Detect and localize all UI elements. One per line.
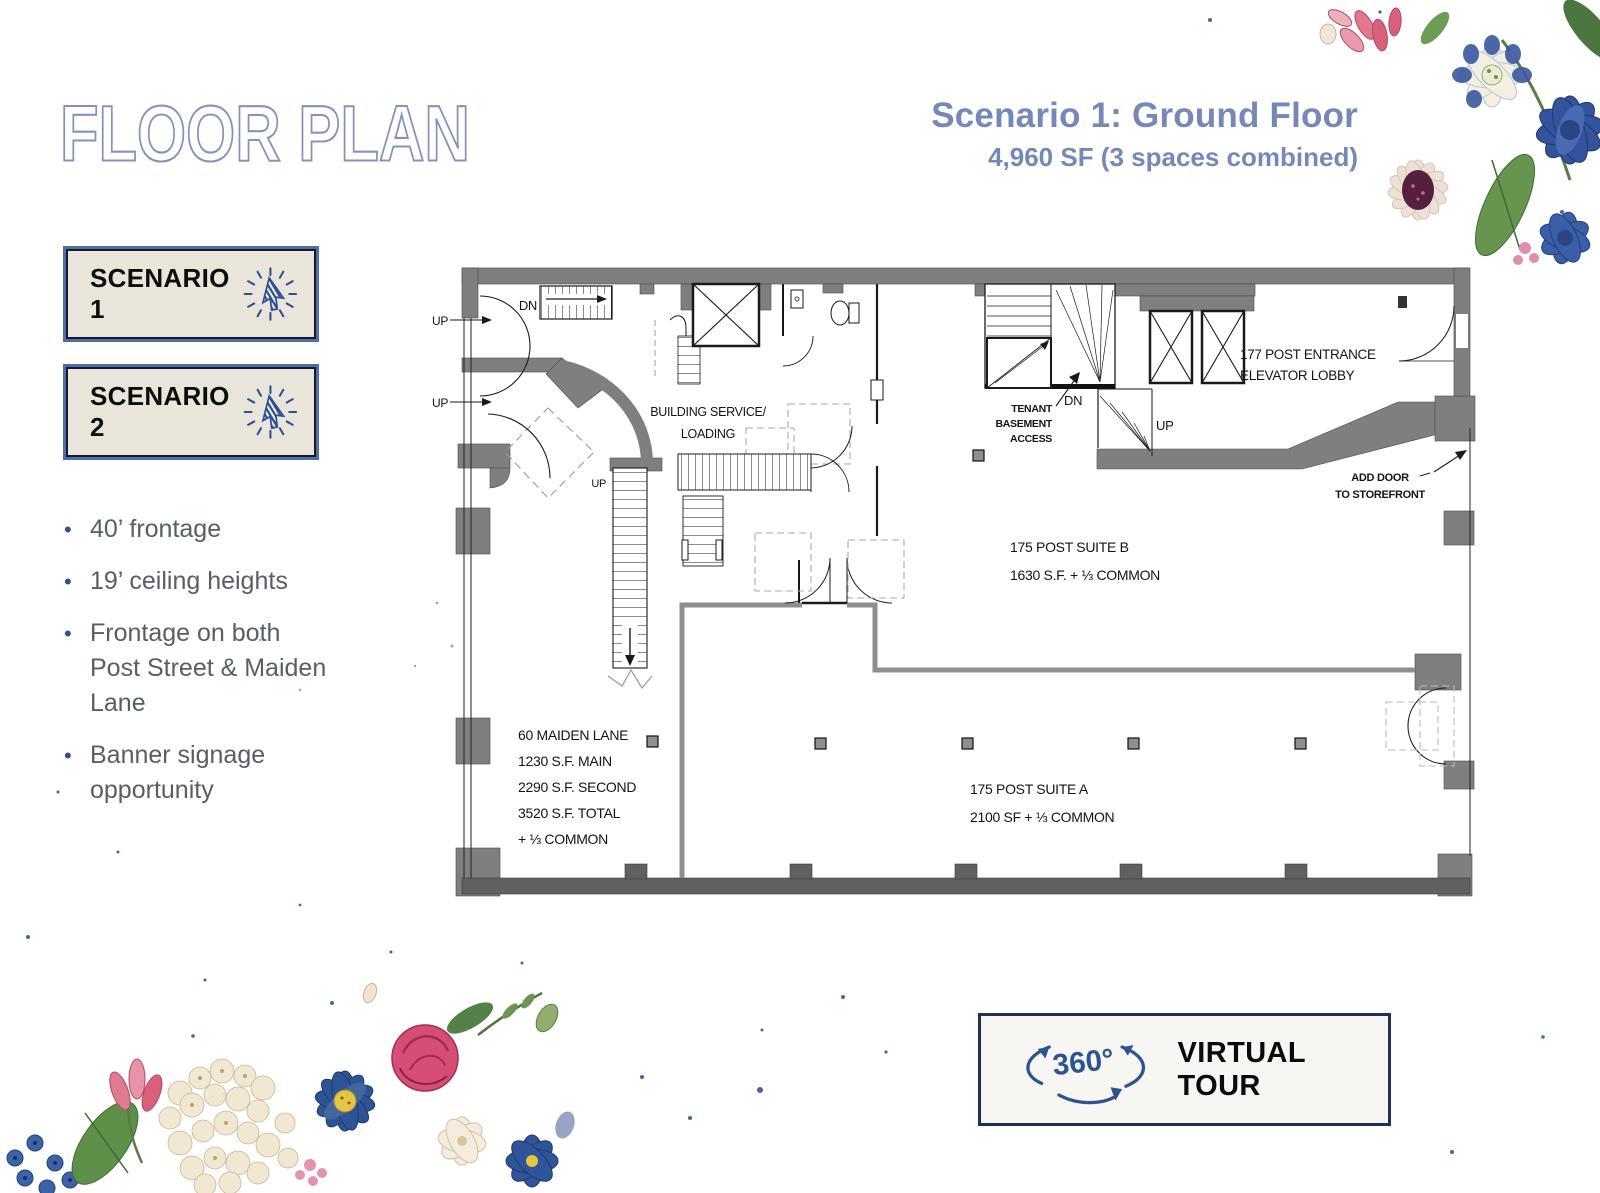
suite-b-label: 175 POST SUITE B: [1010, 539, 1129, 555]
building-service-label: BUILDING SERVICE/: [650, 405, 766, 419]
add-door-label: TO STOREFRONT: [1335, 489, 1425, 501]
bullet-icon: •: [64, 738, 72, 773]
slide: FLOOR PLAN Scenario 1: Ground Floor 4,96…: [0, 0, 1600, 1193]
elevator-lobby-label: ELEVATOR LOBBY: [1240, 368, 1355, 383]
maiden-lane-label: + ⅓ COMMON: [518, 831, 608, 847]
feature-list: •40’ frontage •19’ ceiling heights •Fron…: [60, 512, 335, 825]
stair-up-label: UP: [591, 478, 606, 490]
tenant-access-label: BASEMENT: [995, 418, 1052, 430]
bullet-icon: •: [64, 616, 72, 651]
cursor-click-icon: [243, 377, 298, 447]
bullet-icon: •: [64, 512, 72, 547]
360-tour-icon: 360°: [1009, 1024, 1158, 1116]
scenario-1-button[interactable]: SCENARIO 1: [63, 246, 319, 342]
page-title-text: FLOOR PLAN: [60, 91, 470, 178]
cursor-click-icon: [243, 259, 298, 329]
floral-decoration-bottom-left: [0, 973, 590, 1193]
scenario-2-button[interactable]: SCENARIO 2: [63, 364, 319, 460]
stair-up-label: UP: [432, 396, 448, 410]
list-item: •Frontage on both Post Street & Maiden L…: [60, 616, 335, 721]
maiden-lane-label: 1230 S.F. MAIN: [518, 753, 612, 769]
suite-b-area-label: 1630 S.F. + ⅓ COMMON: [1010, 567, 1160, 583]
virtual-tour-button[interactable]: 360° VIRTUAL TOUR: [978, 1013, 1391, 1126]
scenario-button-column: SCENARIO 1 SCENARIO 2: [63, 246, 319, 482]
list-item: •Banner signage opportunity: [60, 738, 335, 808]
elevator-lobby-label: 177 POST ENTRANCE: [1240, 347, 1376, 362]
stair-dn-label: DN: [519, 298, 537, 313]
suite-a-label: 175 POST SUITE A: [970, 781, 1089, 797]
page-title: FLOOR PLAN: [55, 78, 485, 178]
bullet-icon: •: [64, 564, 72, 599]
list-item: •40’ frontage: [60, 512, 335, 547]
360-icon-text: 360°: [1051, 1042, 1116, 1081]
add-door-label: ADD DOOR: [1351, 472, 1409, 484]
maiden-lane-label: 60 MAIDEN LANE: [518, 727, 628, 743]
stair-up-label: UP: [1156, 418, 1173, 433]
stair-up-label: UP: [432, 314, 448, 328]
floral-decoration-top-right: [1270, 0, 1600, 285]
virtual-tour-label: VIRTUAL TOUR: [1178, 1037, 1388, 1103]
tenant-access-label: TENANT: [1011, 403, 1053, 415]
floor-plan-drawing: DN UP UP UP BUILDING SERVICE/ LOADING TE…: [430, 256, 1485, 916]
stair-dn-label: DN: [1064, 393, 1082, 408]
list-item: •19’ ceiling heights: [60, 564, 335, 599]
tenant-access-label: ACCESS: [1010, 433, 1052, 445]
suite-a-area-label: 2100 SF + ⅓ COMMON: [970, 809, 1114, 825]
maiden-lane-label: 2290 S.F. SECOND: [518, 779, 636, 795]
scenario-1-label: SCENARIO 1: [90, 263, 243, 325]
building-service-label: LOADING: [681, 427, 735, 441]
scenario-2-label: SCENARIO 2: [90, 381, 243, 443]
maiden-lane-label: 3520 S.F. TOTAL: [518, 805, 621, 821]
